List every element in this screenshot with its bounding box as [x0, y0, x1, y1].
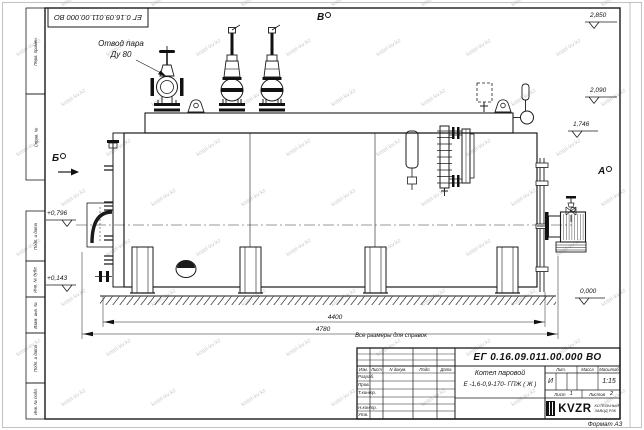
callout-steam-outlet-line2: Ду 80	[92, 49, 150, 59]
steam-outlet-valve-icon	[151, 46, 184, 112]
sheets-total-cell: Листов 2	[582, 390, 620, 398]
front-fittings	[95, 136, 119, 282]
title-block-doc-number: ЕГ 0.16.09.011.00.000 ВО	[457, 350, 618, 365]
kvzr-logomark-icon	[546, 401, 555, 416]
doc-number-flipped: ЕГ 0.16.09.011.00.000 ВО	[48, 8, 148, 27]
elevation-plus0796: +0,796	[47, 210, 67, 217]
view-b-arrow	[58, 169, 79, 176]
margin-box-podp-data-1: Подп. и дата	[26, 211, 45, 261]
margin-box-sprav-no: Справ. №	[26, 94, 45, 180]
col-podp: Подп.	[413, 367, 437, 374]
col-izm: Изм.	[357, 367, 370, 374]
dashed-connection	[477, 83, 492, 112]
lit-header: Лит.	[545, 367, 577, 374]
boiler-drawing-lineart	[0, 0, 644, 430]
margin-box-inv-dubl: Инв. № дубл.	[26, 261, 45, 297]
lit-value: И	[545, 374, 556, 388]
dim-4780: 4780	[288, 325, 358, 333]
safety-valve-2	[259, 25, 285, 112]
col-list: Лист	[370, 367, 383, 374]
view-label-b: Б	[52, 153, 66, 164]
view-label-b-text: Б	[52, 153, 59, 164]
safety-valve-1	[219, 25, 245, 112]
pressure-gauge-siphon	[513, 84, 534, 124]
row-nkontr: Н.контр.	[358, 405, 377, 410]
view-label-a-text: А	[598, 166, 605, 177]
sheets-label: Листов	[589, 392, 605, 397]
col-data: Дата	[437, 367, 455, 374]
drawing-sheet: kotel-kv.kzkotel-kv.kzkotel-kv.kzkotel-k…	[0, 0, 644, 430]
view-label-v: В	[317, 12, 331, 23]
margin-box-podp-data-2: Подп. и дата	[26, 333, 45, 383]
masshtab-header: Масштаб	[598, 367, 620, 374]
sheet-value: 1	[570, 391, 573, 397]
rotated-mark-icon	[60, 153, 66, 159]
row-razrab: Разраб.	[358, 374, 374, 379]
elevation-1746: 1,746	[573, 121, 589, 128]
massa-header: Масса	[577, 367, 598, 374]
lifting-lug-right	[495, 100, 511, 112]
view-label-v-text: В	[317, 12, 324, 23]
lifting-lug-left	[188, 100, 204, 112]
elevation-2090: 2,090	[590, 87, 606, 94]
callout-leader	[136, 60, 166, 76]
row-utv: Утв.	[358, 412, 368, 417]
company-logo: KVZR КОТЕЛЬНЫЙ ЗАВОД РЗК	[546, 399, 619, 418]
kvzr-logo-caption: КОТЕЛЬНЫЙ ЗАВОД РЗК	[595, 404, 620, 413]
elevation-2850: 2,850	[590, 12, 606, 19]
margin-box-inv-podl: Инв. № подл.	[26, 383, 45, 419]
logo-caption-line2: ЗАВОД РЗК	[595, 409, 620, 413]
title-block-product-name: Котел паровой	[457, 368, 543, 378]
rotated-mark-icon	[325, 12, 331, 18]
format-note: Формат А3	[560, 420, 644, 428]
view-label-a: А	[598, 166, 612, 177]
row-tkontr: Т.контр.	[358, 390, 376, 395]
row-prov: Пров.	[358, 382, 370, 387]
boiler-shell	[113, 113, 537, 287]
sheets-value: 2	[610, 391, 613, 397]
margin-box-perv-primen: Перв. примен.	[26, 8, 45, 94]
kvzr-logo-text: KVZR	[558, 403, 591, 415]
sheet-label: Лист	[554, 392, 565, 397]
title-block-product-model: Е -1,6-0,9-170- ГПЖ ( Ж )	[457, 379, 543, 389]
sheet-number-cell: Лист 1	[545, 390, 582, 398]
rotated-mark-icon	[606, 166, 612, 172]
ground-hatch	[100, 296, 556, 305]
scale-value: 1:15	[598, 374, 620, 388]
col-n-dokum: N докум.	[383, 367, 413, 374]
reference-note: Все размеры для справок	[350, 332, 432, 340]
elevation-plus0143: +0,143	[47, 275, 67, 282]
elevation-0000: 0,000	[580, 288, 596, 295]
callout-steam-outlet-line1: Отвод пара	[92, 38, 150, 48]
margin-box-vzam-inv: Взам. инв. №	[26, 297, 45, 333]
dim-4400: 4400	[300, 313, 370, 321]
